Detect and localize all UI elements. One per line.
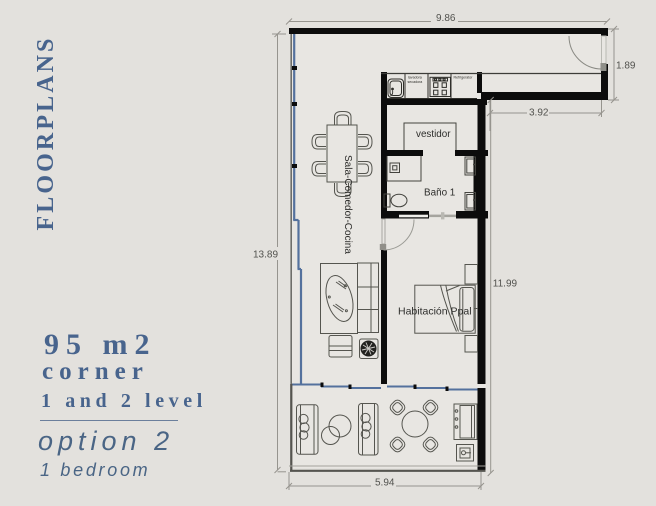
svg-text:5.94: 5.94	[375, 478, 395, 489]
svg-text:vestidor: vestidor	[416, 129, 451, 140]
svg-text:Baño 1: Baño 1	[424, 188, 456, 199]
svg-text:13.89: 13.89	[253, 250, 278, 261]
svg-text:lavadora: lavadora	[408, 76, 422, 80]
svg-text:Sala-Comedor-Cocina: Sala-Comedor-Cocina	[342, 155, 353, 254]
svg-text:secadora: secadora	[408, 80, 423, 84]
svg-text:Refrigerator: Refrigerator	[454, 76, 474, 80]
svg-text:9.86: 9.86	[436, 13, 456, 24]
svg-text:11.99: 11.99	[493, 279, 518, 290]
svg-text:1.89: 1.89	[616, 61, 636, 72]
svg-text:Habitación Ppal: Habitación Ppal	[398, 306, 472, 318]
svg-text:3.92: 3.92	[529, 108, 549, 119]
